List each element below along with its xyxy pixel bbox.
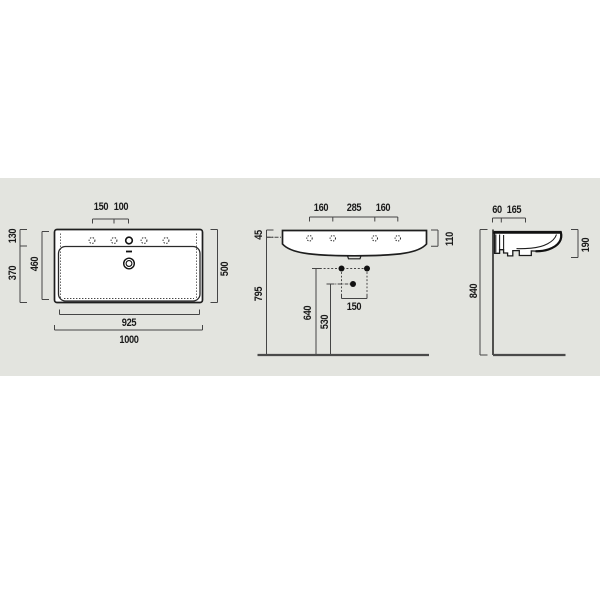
dim-label-bowl-width: 925 — [122, 317, 136, 329]
dim-label-underside-height: 795 — [253, 287, 265, 301]
dim-label-hole-spacing-outer: 150 — [93, 201, 107, 213]
dim-label-rim-height-floor: 840 — [468, 283, 480, 297]
dim-label-rim-height: 110 — [444, 232, 456, 246]
fixing-hole-dot — [364, 266, 370, 272]
dim-label-hole-right: 160 — [375, 202, 389, 214]
front-view-drawing — [258, 217, 439, 355]
technical-drawing-canvas — [0, 0, 600, 600]
dim-label-body-height: 190 — [580, 237, 592, 251]
dim-label-hole-center: 285 — [347, 202, 361, 214]
dim-label-holes-to-front: 370 — [7, 265, 19, 279]
dim-label-wall-offset: 60 — [492, 204, 502, 216]
top-view-drawing — [20, 219, 218, 330]
dim-label-hole-left: 160 — [314, 202, 328, 214]
fixing-hole-dot — [339, 266, 345, 272]
drain-point-dot — [350, 281, 356, 287]
dim-label-bowl-depth: 460 — [29, 257, 41, 271]
dim-label-fixing-spacing: 150 — [347, 301, 361, 313]
dim-label-edge-to-holes: 130 — [7, 229, 19, 243]
dim-label-fixing-height: 640 — [302, 305, 314, 319]
dim-label-drain-height: 530 — [319, 314, 331, 328]
dim-label-overall-width: 1000 — [119, 334, 138, 346]
dim-label-hole-spacing-inner: 100 — [113, 201, 127, 213]
dim-label-rim-thickness: 45 — [253, 230, 265, 240]
basin-outline-side — [495, 232, 562, 256]
dim-label-overall-depth: 500 — [219, 262, 231, 276]
dim-label-bracket-depth: 165 — [506, 204, 520, 216]
side-view-drawing — [480, 218, 578, 355]
basin-outline-front — [283, 231, 427, 256]
